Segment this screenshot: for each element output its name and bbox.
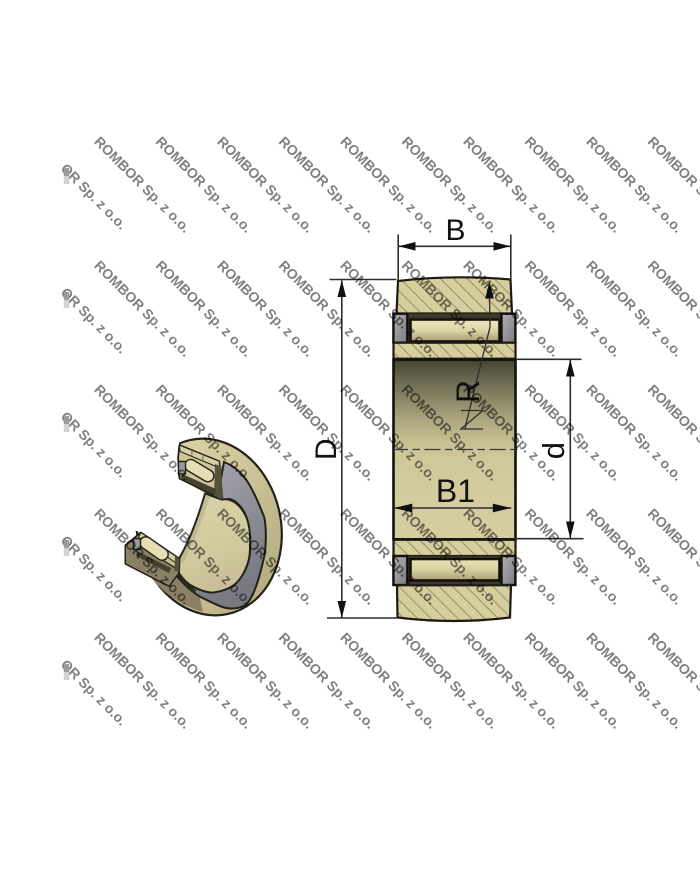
svg-text:B: B [445,214,465,247]
svg-text:B1: B1 [436,473,475,509]
